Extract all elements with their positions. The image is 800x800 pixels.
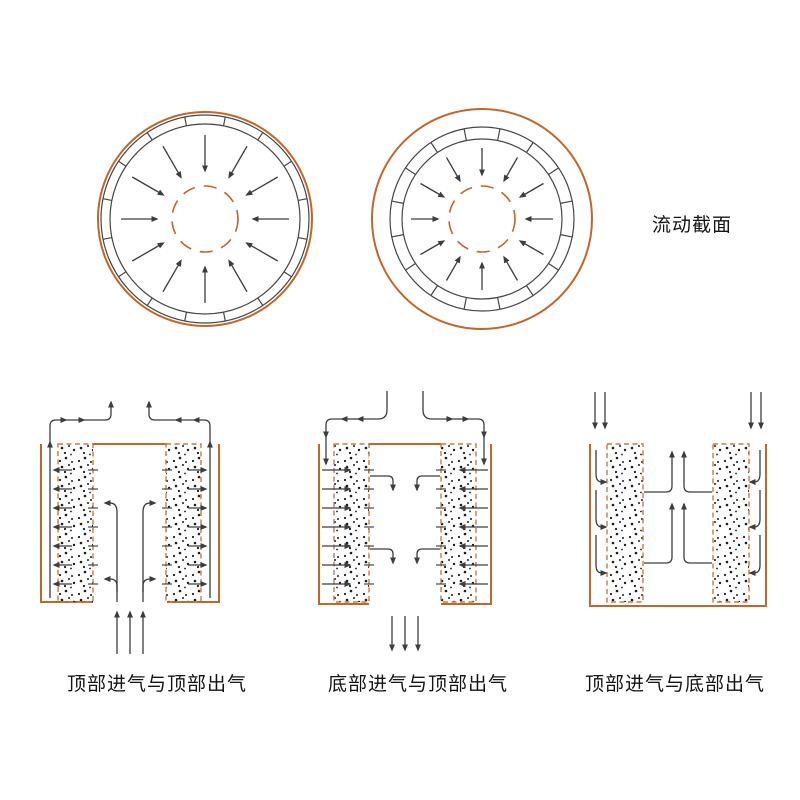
catalyst-bed-left <box>58 444 93 602</box>
catalyst-bed-right <box>166 444 201 602</box>
inward-flow-arrow <box>163 146 181 177</box>
top-collector-arrow <box>50 420 66 442</box>
inward-flow-arrow <box>520 184 543 198</box>
ring-segment-tick <box>392 201 404 203</box>
ring-segment-tick <box>224 312 226 321</box>
annulus-feed-arrow <box>596 450 606 482</box>
cross-section-right <box>372 109 592 329</box>
ring-segment-tick <box>549 263 559 270</box>
ring-segment-tick <box>560 201 572 203</box>
annulus-feed-arrow <box>596 535 606 573</box>
ring-segment-tick <box>498 129 500 141</box>
caption-diagram-1: 顶部进气与顶部出气 <box>67 673 247 695</box>
center-riser-arrow <box>684 504 712 563</box>
inward-flow-arrow <box>504 158 518 181</box>
ring-segment-tick <box>103 238 112 240</box>
inward-flow-arrow <box>229 261 247 292</box>
inward-flow-arrow <box>447 257 461 280</box>
flow-diagram-figure: 流动截面 <box>0 0 800 800</box>
ring-segment-tick <box>103 199 112 201</box>
ring-segment-tick <box>298 199 307 201</box>
center-collector-arrow <box>370 476 393 490</box>
caption-diagram-2: 底部进气与顶部出气 <box>328 673 508 695</box>
ring-segment-tick <box>284 161 291 166</box>
inward-flow-arrow <box>163 261 181 292</box>
center-riser-arrow <box>644 504 672 563</box>
ring-segment-tick <box>431 286 438 296</box>
annulus-feed-arrow <box>750 450 760 482</box>
ring-segment-tick <box>406 168 416 175</box>
inward-flow-arrow <box>247 243 278 261</box>
ring-segment-tick <box>284 272 291 277</box>
center-distributor-arrow <box>105 579 117 592</box>
ring-segment-tick <box>464 297 466 309</box>
annulus-downcomer-arrow <box>326 419 342 437</box>
ring-segment-tick <box>464 129 466 141</box>
ring-segment-tick <box>147 298 152 305</box>
catalyst-bed-left <box>334 444 369 602</box>
diagram-1-vessel <box>41 402 219 654</box>
center-riser-arrow <box>644 452 672 492</box>
ring-segment-tick <box>560 235 572 237</box>
center-pipe-dashed-circle <box>449 186 515 252</box>
ring-segment-tick <box>119 272 126 277</box>
section-label: 流动截面 <box>652 214 732 236</box>
center-distributor-arrow <box>105 503 117 602</box>
ring-segment-tick <box>526 286 533 296</box>
diagram-2-vessel <box>319 391 491 650</box>
center-distributor-arrow <box>143 503 155 602</box>
inward-flow-arrow <box>229 146 247 177</box>
inward-flow-arrow <box>504 257 518 280</box>
diagram-3-vessel <box>590 392 766 606</box>
ring-segment-tick <box>526 143 533 153</box>
inward-flow-arrows <box>121 135 289 303</box>
annulus-feed-arrow <box>750 535 760 573</box>
annulus-feed-arrow <box>750 490 760 527</box>
annulus-feed-arrow <box>596 490 606 527</box>
ring-segment-tick <box>224 117 226 126</box>
inward-flow-arrow <box>421 241 444 255</box>
top-collector-arrow <box>194 420 210 442</box>
ring-segment-tick <box>147 133 152 140</box>
center-riser-arrow <box>684 452 712 492</box>
center-collector-arrow <box>417 549 440 563</box>
ring-segment-tick <box>392 235 404 237</box>
cross-section-left <box>98 112 312 326</box>
inward-flow-arrows <box>411 148 553 290</box>
top-inlet-header-arrow <box>358 391 387 419</box>
inward-flow-arrow <box>520 241 543 255</box>
center-pipe-dashed-circle <box>172 186 238 252</box>
center-distributor-arrow <box>143 579 155 592</box>
ring-segment-tick <box>298 238 307 240</box>
inward-flow-arrow <box>421 184 444 198</box>
top-outlet-arrow <box>149 402 176 420</box>
inward-flow-arrow <box>132 177 163 195</box>
inward-flow-arrow <box>132 243 163 261</box>
flow-diagram-canvas: 流动截面 <box>0 0 800 800</box>
ring-segment-tick <box>406 263 416 270</box>
inward-flow-arrow <box>447 158 461 181</box>
vessel-shell-circle <box>372 109 592 329</box>
catalyst-bed-right <box>441 444 476 602</box>
catalyst-bed-left <box>607 444 643 602</box>
ring-segment-tick <box>258 298 263 305</box>
catalyst-bed-right <box>713 444 749 602</box>
ring-segment-tick <box>549 168 559 175</box>
ring-segment-tick <box>185 117 187 126</box>
top-inlet-header-arrow <box>423 391 452 419</box>
ring-segment-tick <box>258 133 263 140</box>
top-outlet-arrow <box>84 402 111 420</box>
ring-segment-tick <box>185 312 187 321</box>
ring-segment-tick <box>498 297 500 309</box>
ring-segment-tick <box>431 143 438 153</box>
ring-segment-tick <box>119 161 126 166</box>
center-collector-arrow <box>370 549 393 563</box>
center-collector-arrow <box>417 476 440 490</box>
caption-diagram-3: 顶部进气与底部出气 <box>585 673 765 695</box>
inward-flow-arrow <box>247 177 278 195</box>
annulus-downcomer-arrow <box>468 419 484 437</box>
